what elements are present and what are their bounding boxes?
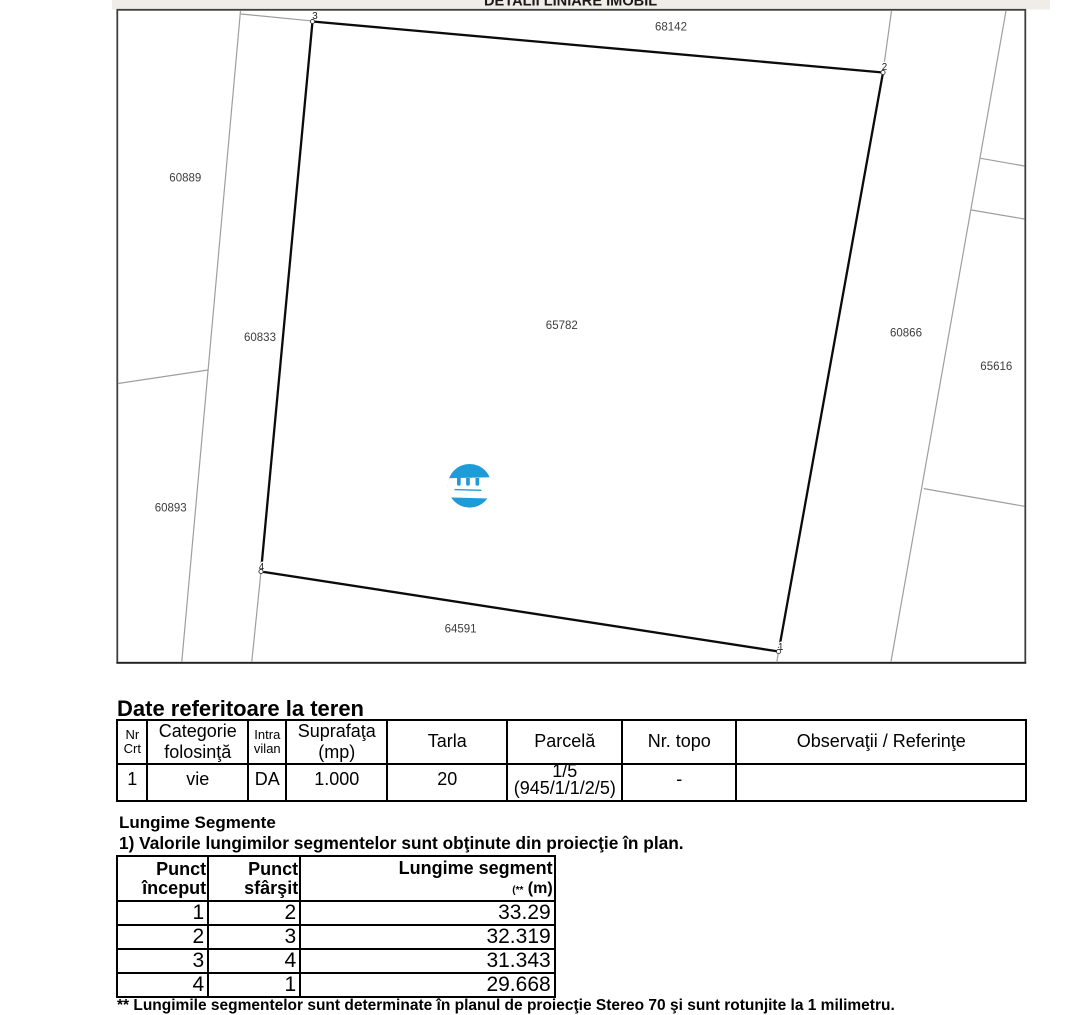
svg-text:60833: 60833	[244, 332, 276, 344]
svg-text:DETALII LINIARE IMOBIL: DETALII LINIARE IMOBIL	[484, 0, 657, 10]
svg-text:60889: 60889	[169, 173, 201, 185]
svg-text:68142: 68142	[655, 22, 687, 34]
svg-text:64591: 64591	[445, 624, 477, 636]
svg-text:60866: 60866	[890, 328, 922, 340]
svg-text:60893: 60893	[155, 503, 187, 515]
svg-text:65782: 65782	[546, 320, 578, 332]
svg-text:65616: 65616	[980, 361, 1012, 373]
